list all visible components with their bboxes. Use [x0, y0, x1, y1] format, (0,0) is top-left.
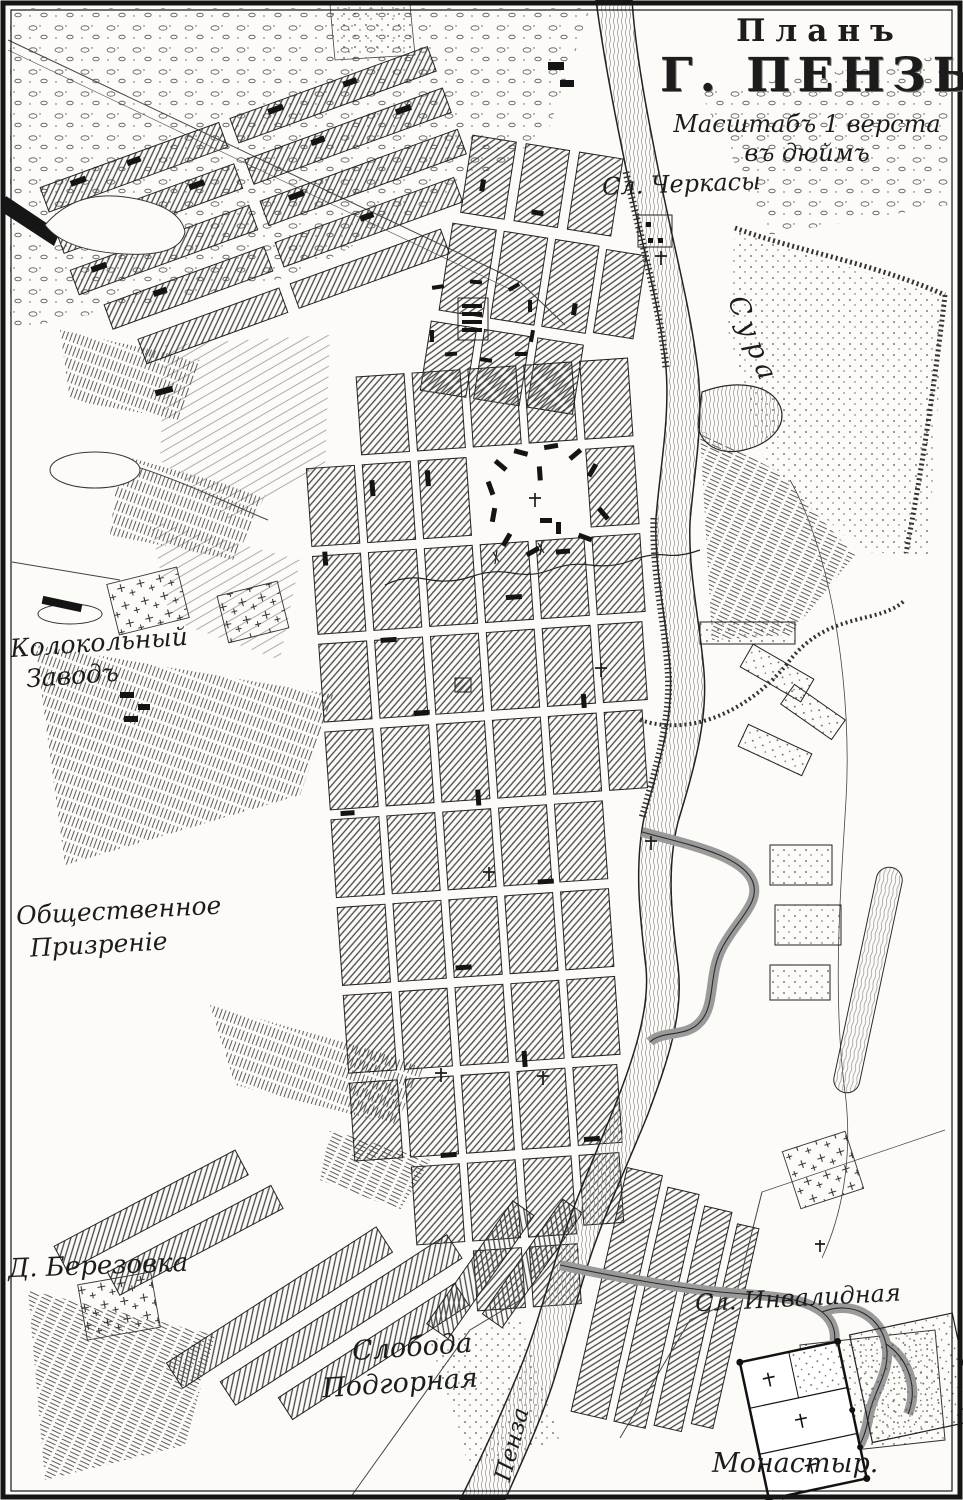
- label-podgornaya-line1: Слобода: [351, 1330, 473, 1365]
- label-kolokolny-zavod-line2: Заводъ: [25, 660, 119, 691]
- map-scale-line2: въ дюймъ: [672, 141, 942, 165]
- label-berezovka: Д. Березовка: [8, 1250, 189, 1282]
- label-prizrenie-line2: Призреніе: [29, 928, 168, 960]
- map-scale-line1: Масштабъ 1 верста: [672, 112, 942, 136]
- label-sloboda-cherkasy: Сл. Черкасы: [602, 169, 761, 199]
- map-title-word: Планъ: [735, 16, 905, 47]
- map-title-city: Г. ПЕНЗЫ.: [660, 52, 950, 99]
- label-monastyr: Монастыр.: [712, 1450, 878, 1477]
- map-canvas: Планъ Г. ПЕНЗЫ. Масштабъ 1 верста въ дюй…: [0, 0, 963, 1500]
